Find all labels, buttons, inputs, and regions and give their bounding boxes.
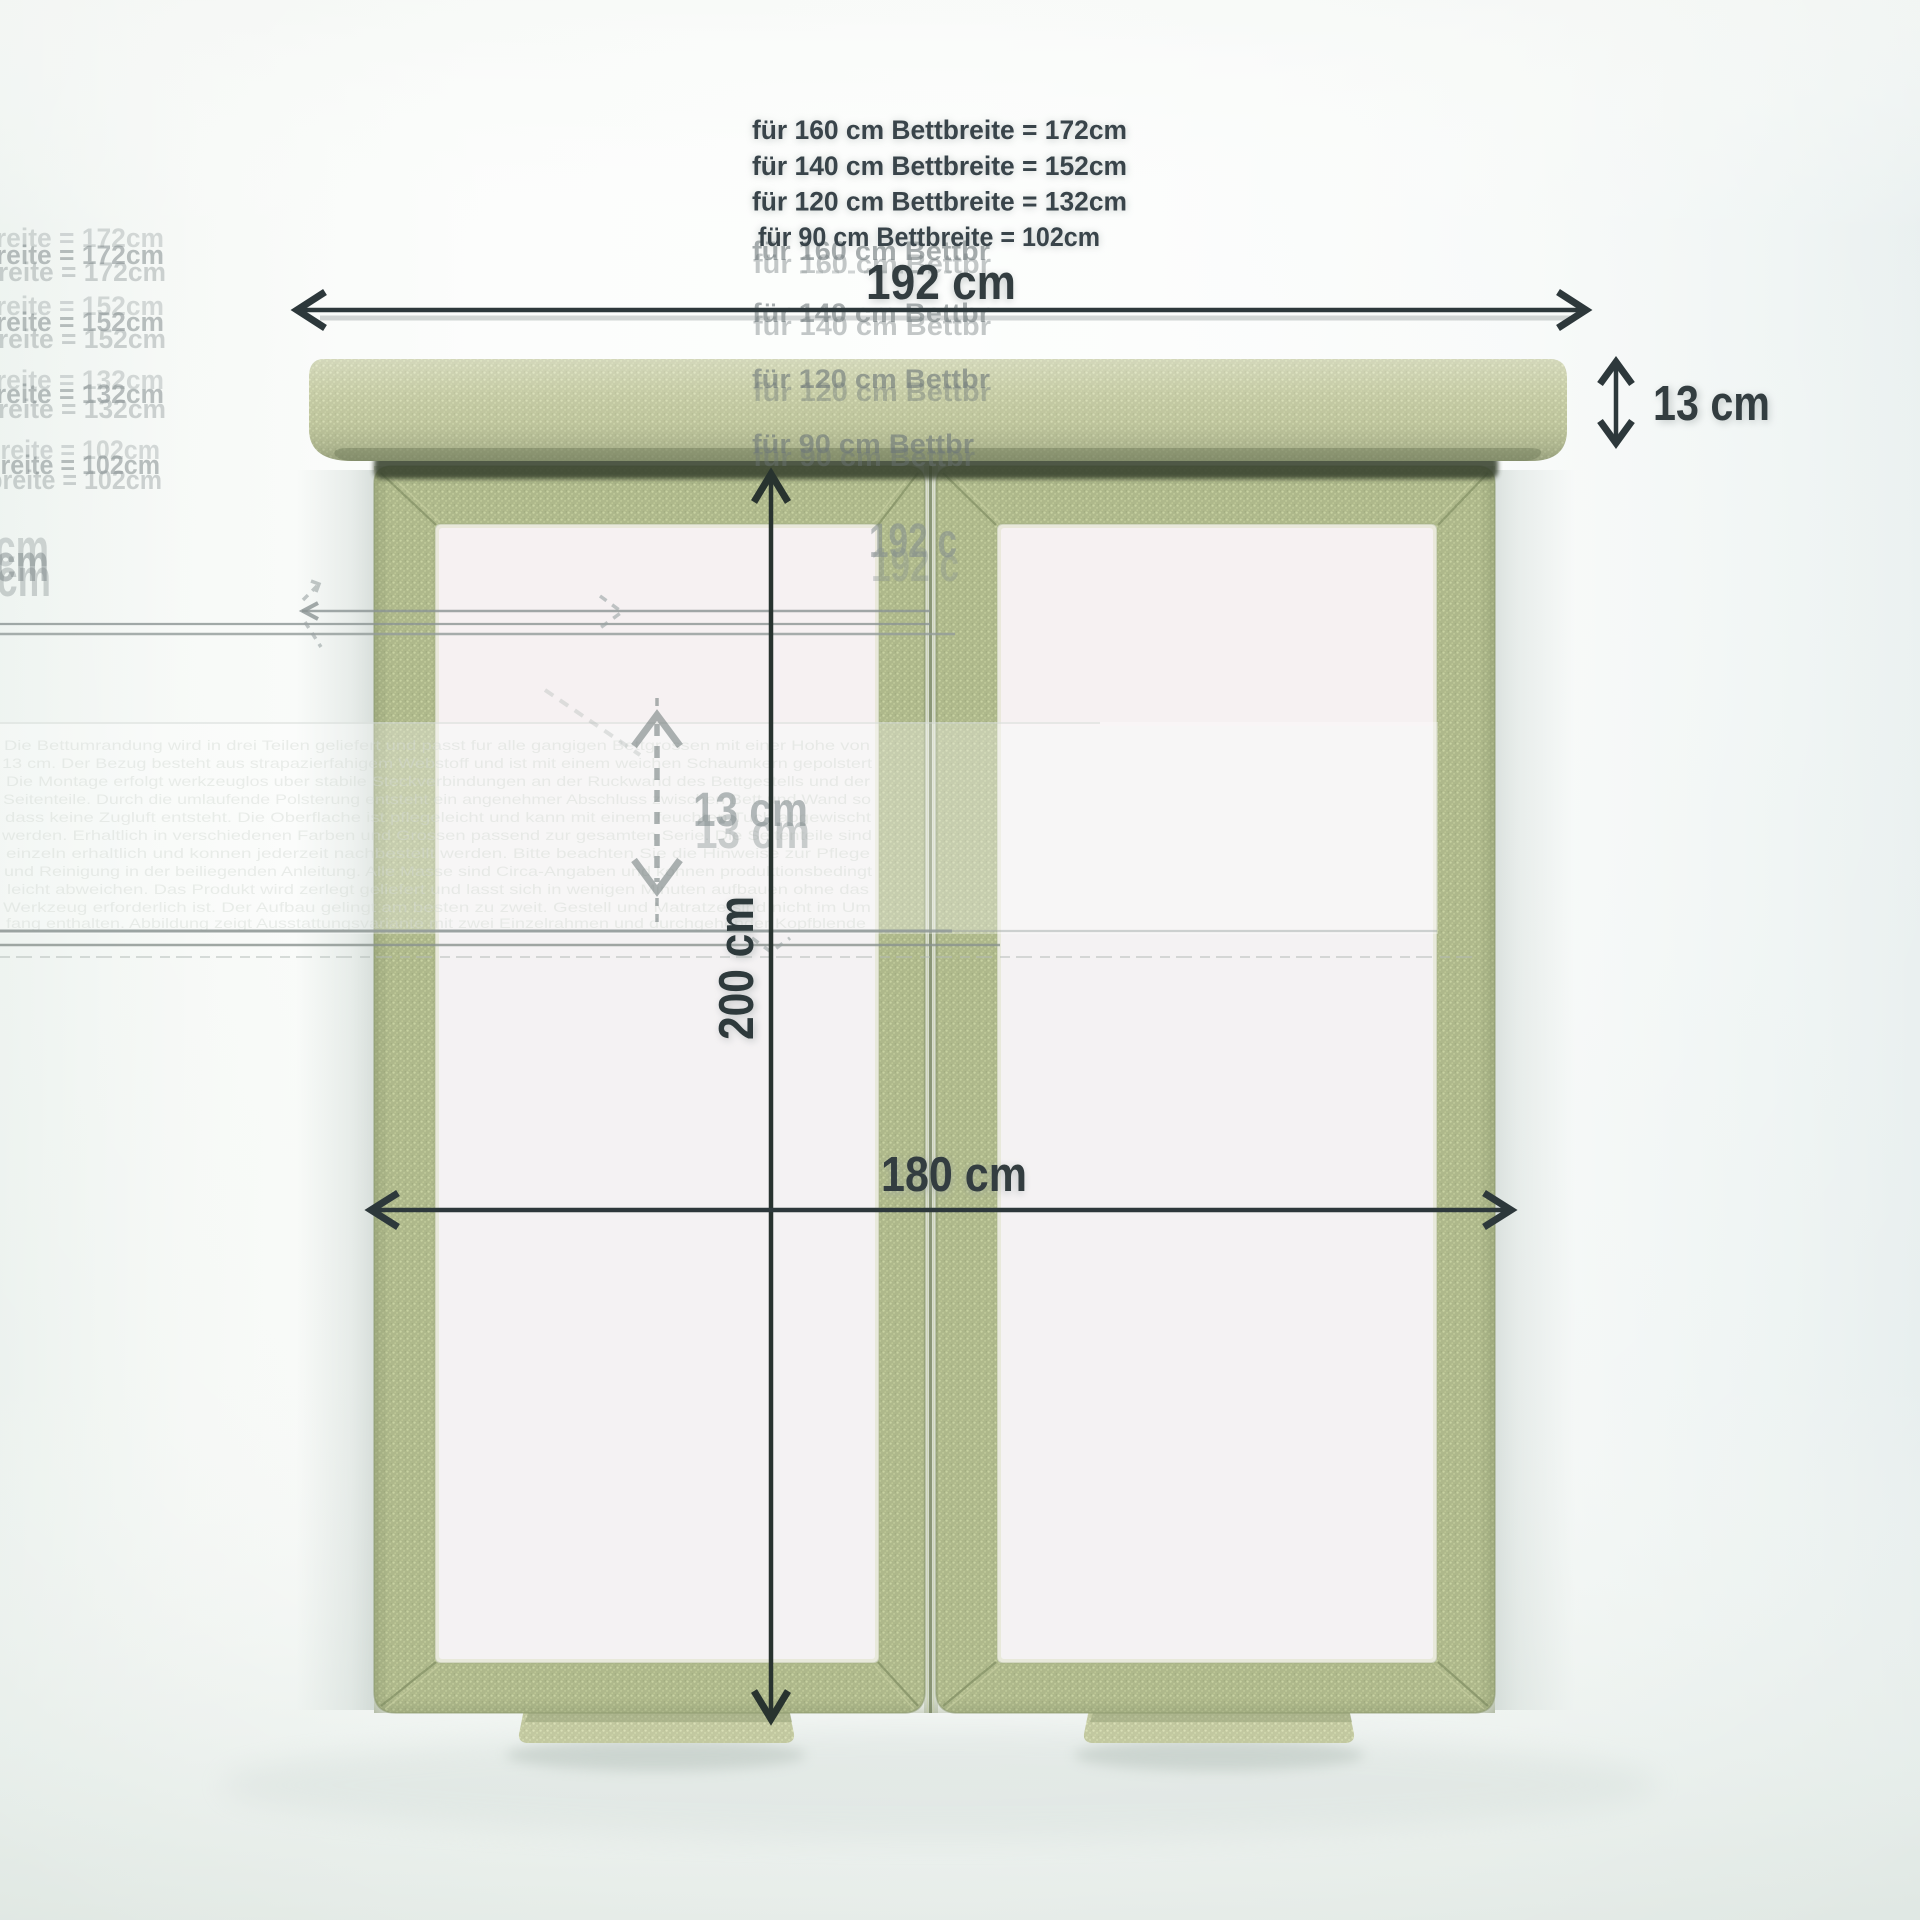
svg-text:13 cm: 13 cm <box>695 806 810 859</box>
svg-text:für 90 cm Bettbreite = 102cm: für 90 cm Bettbreite = 102cm <box>0 465 162 495</box>
svg-text:und Reinigung in der beiliegen: und Reinigung in der beiliegenden Anleit… <box>4 863 872 879</box>
svg-text:für 90 cm Bettbr: für 90 cm Bettbr <box>753 442 975 472</box>
svg-text:13 cm: 13 cm <box>1653 377 1770 431</box>
svg-text:leicht abweichen. Das Produkt: leicht abweichen. Das Produkt wird zerle… <box>7 881 869 897</box>
svg-text:192 c: 192 c <box>871 539 959 592</box>
svg-text:für 120 cm Bettbr: für 120 cm Bettbr <box>753 377 991 407</box>
svg-text:für 140 cm Bettbreite = 152cm: für 140 cm Bettbreite = 152cm <box>752 151 1127 181</box>
svg-text:für 160 cm Bettbreite = 172cm: für 160 cm Bettbreite = 172cm <box>0 257 166 287</box>
svg-text:für 140 cm Bettbreite = 152cm: für 140 cm Bettbreite = 152cm <box>0 324 166 354</box>
svg-text:180 cm: 180 cm <box>881 1148 1027 1202</box>
svg-text:02cm: 02cm <box>0 549 51 608</box>
svg-text:Die Bettumrandung wird in drei: Die Bettumrandung wird in drei Teilen ge… <box>4 737 870 753</box>
svg-text:für 160 cm Bettbreite = 172cm: für 160 cm Bettbreite = 172cm <box>752 115 1127 145</box>
svg-text:192 cm: 192 cm <box>866 256 1016 310</box>
svg-text:für 120 cm Bettbreite = 132cm: für 120 cm Bettbreite = 132cm <box>752 187 1127 217</box>
svg-text:200 cm: 200 cm <box>710 896 764 1040</box>
svg-text:für 120 cm Bettbreite = 132cm: für 120 cm Bettbreite = 132cm <box>0 394 166 424</box>
svg-text:13 cm. Der Bezug besteht aus s: 13 cm. Der Bezug besteht aus strapazierf… <box>2 755 872 771</box>
svg-text:für 90 cm Bettbreite = 102cm: für 90 cm Bettbreite = 102cm <box>758 222 1100 252</box>
